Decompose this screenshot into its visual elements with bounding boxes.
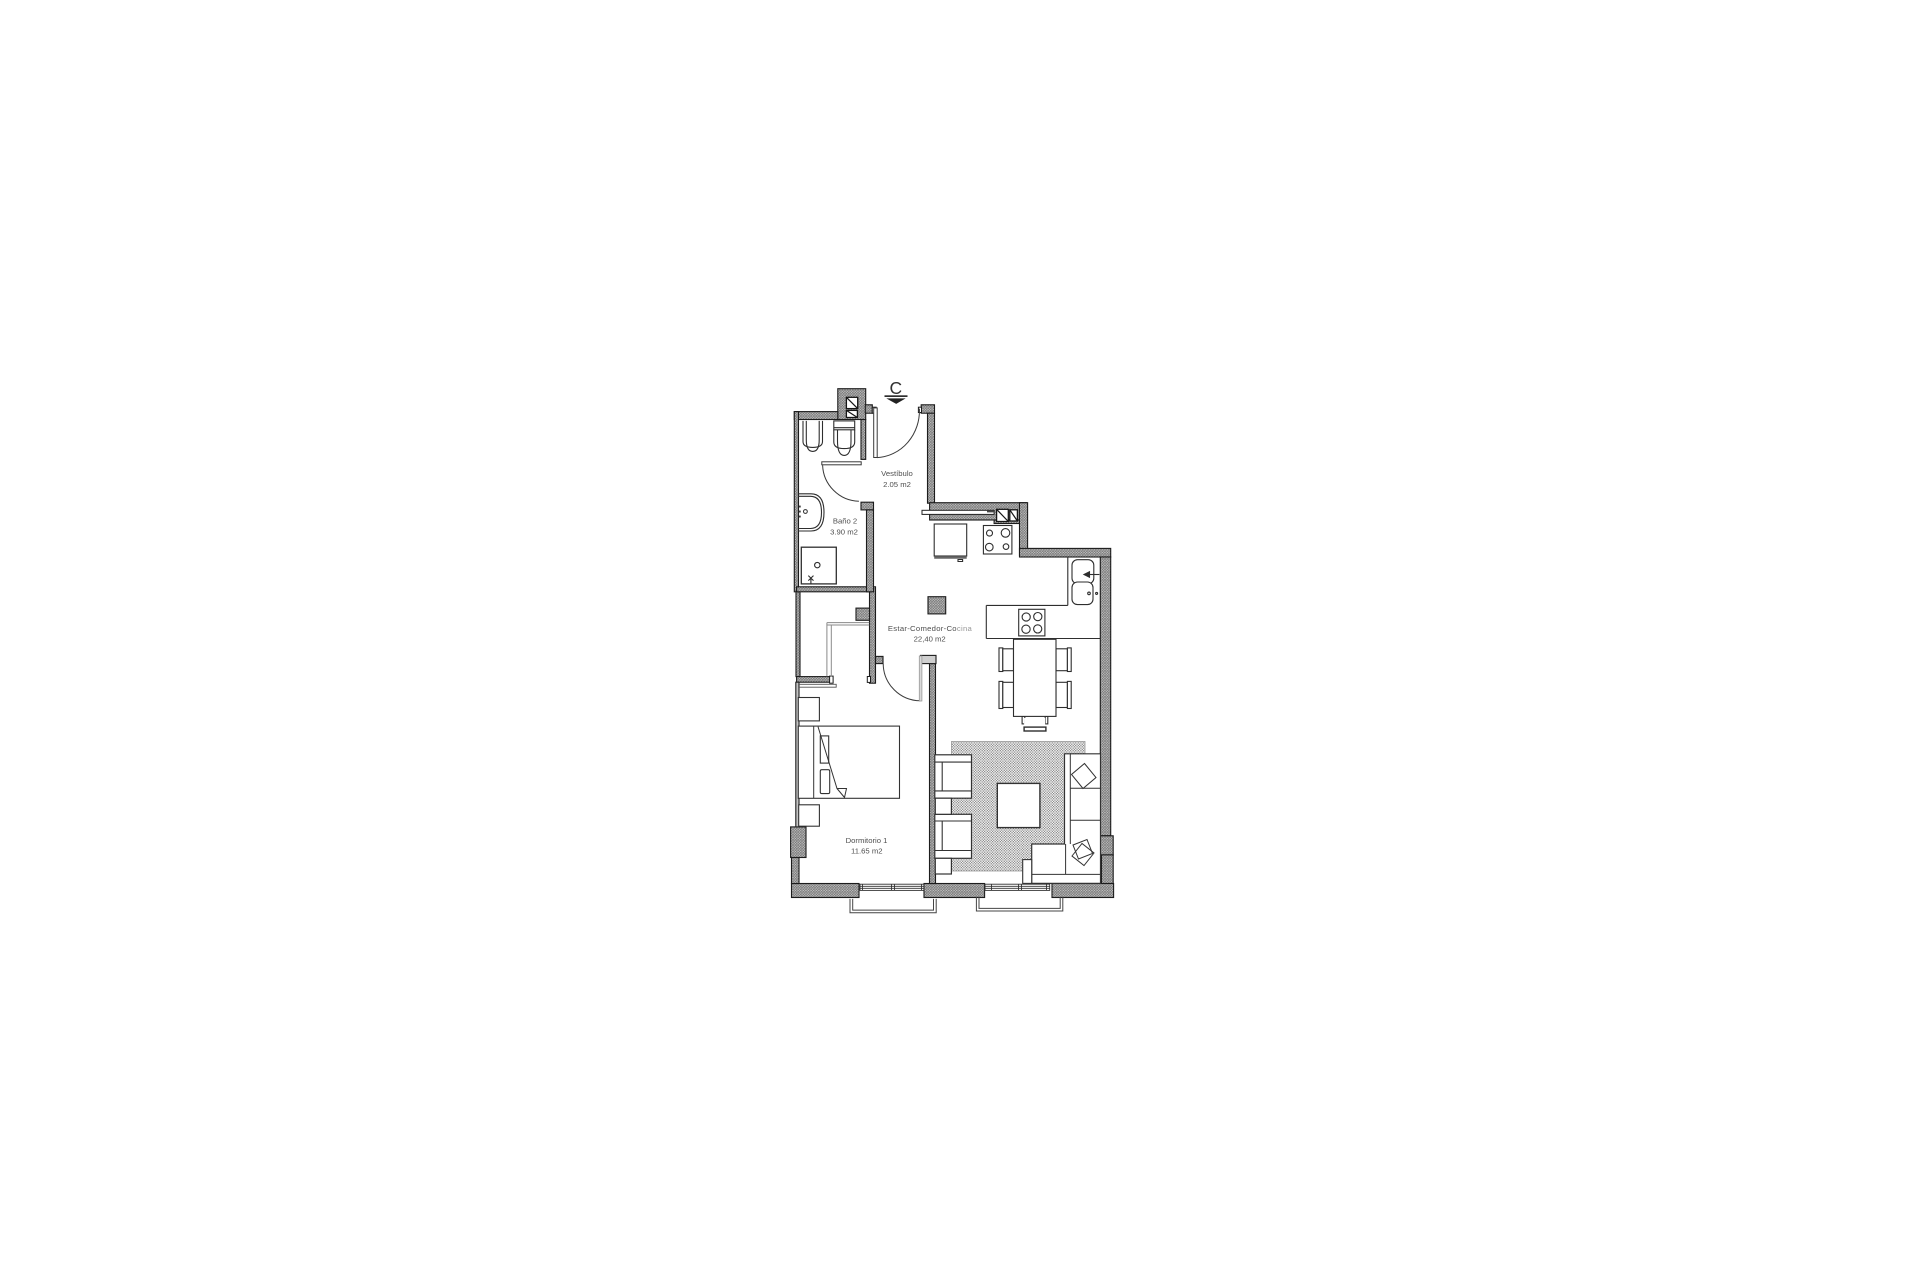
svg-text:2.05 m2: 2.05 m2 (883, 480, 911, 489)
svg-text:Baño 2: Baño 2 (833, 517, 857, 526)
svg-text:11.65 m2: 11.65 m2 (851, 846, 882, 855)
svg-text:C: C (889, 378, 902, 398)
svg-text:3.90 m2: 3.90 m2 (830, 528, 858, 537)
svg-text:Estar-Comedor-Cocina: Estar-Comedor-Cocina (888, 624, 973, 633)
svg-text:22,40 m2: 22,40 m2 (914, 635, 946, 644)
svg-text:Vestíbulo: Vestíbulo (881, 469, 913, 478)
svg-text:Dormitorio 1: Dormitorio 1 (846, 836, 888, 845)
